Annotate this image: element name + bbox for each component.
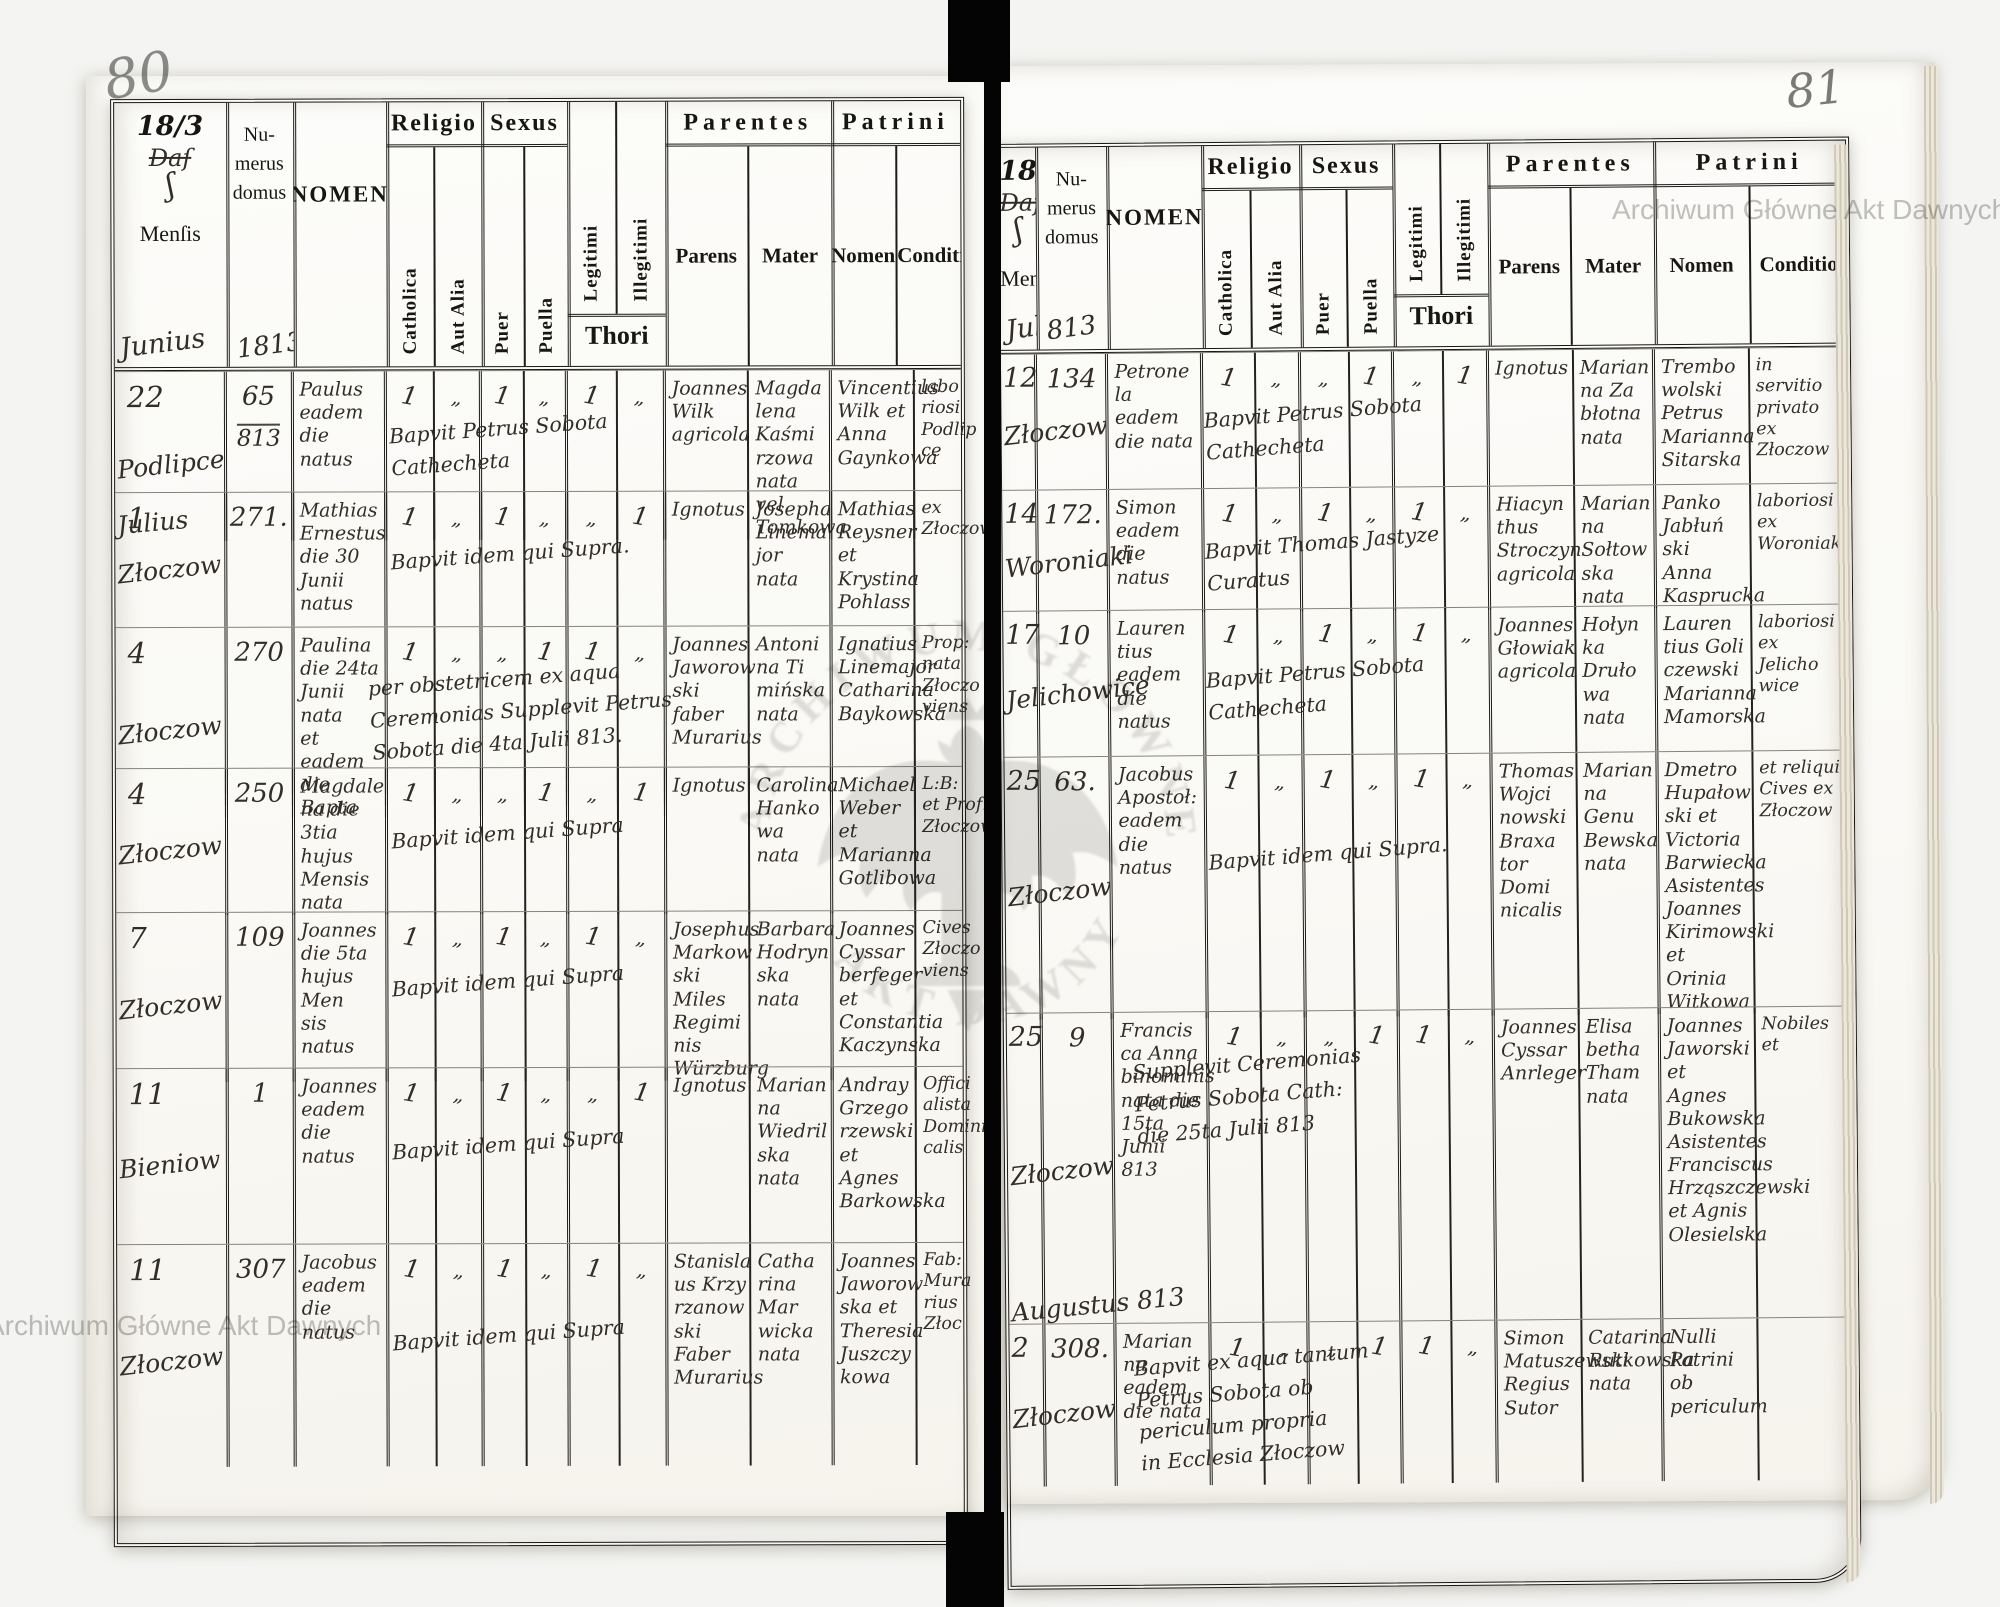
group-subcolumns: PuerPuella [1300,189,1394,347]
puer-mark: 1 [1302,615,1352,651]
header-group-sexus: SexusPuerPuella [1299,144,1397,347]
conditio-cell: in servitio privato ex Złoczow [1750,348,1849,484]
mater-cell: Marian na Genu Bewska nata [1577,752,1660,1015]
group-title: Patrini [1653,141,1845,188]
numerus-cell: 250 [228,769,295,915]
catholica-mark: 1 [385,499,435,535]
nomen-cell: Jacobus eadem die natus [296,1244,390,1466]
legitimi-mark: 1 [568,1250,620,1287]
puella-mark: „ [526,1255,570,1286]
place-name: Złoczow [117,711,224,751]
vertical-label: Aut Alia [448,278,470,354]
day-number: 4 [128,636,225,670]
group-subcolumns: LegitimiIllegitimi [1392,144,1488,295]
puer-mark: 1 [480,378,525,414]
child-name: Petrone la eadem die nata [1108,353,1201,453]
aut-alia-mark: „ [433,382,481,413]
table-header: 18/3DaſʃMenſisJuniusNu- merus domus1813N… [114,101,961,371]
patrini-nomen-cell: Trembo wolski Petrus Marianna Sitarska [1655,348,1751,484]
child-name: Magdale na die 3tia hujus Mensis nata [294,768,385,914]
year-label: 18/3 [114,111,226,142]
patrini-nomen-cell: Joannes Jaworski et Agnes Bukowska Asist… [1661,1007,1758,1318]
legitimi-mark-cell: 1 [571,1244,621,1466]
header-group-patrini: PatriniNomenConditio [1653,141,1847,345]
mater-cell: Marian na Za błotna nata [1574,349,1656,485]
date-cell: 7Złoczow [116,913,228,1082]
subcolumn: Puella [526,147,569,366]
illegitimi-mark-cell: „ [1448,754,1495,1016]
nomen-cell: Joannes die 5ta hujus Men sis natus [295,912,389,1081]
group-title: Parentes [1487,142,1653,188]
group-subcolumns: CatholicaAut Alia [387,147,482,366]
house-number: 270 [227,638,291,668]
month-handwritten: Julius [1004,306,1040,347]
father-name: Stanisla us Krzy rzanow ski Faber Murari… [668,1243,750,1389]
group-title: Religio [1201,145,1300,191]
puella-mark: „ [1351,765,1396,796]
numerus-cell: 271. [227,493,294,627]
group-title: Patrini [831,101,961,146]
illegitimi-mark-cell: „ [620,1244,668,1466]
nomen-cell: Petrone la eadem die nata [1108,353,1204,489]
house-number: 65 [227,382,291,412]
table-row: 2Złoczow308.Marian na eadem die nata1„„1… [1009,1316,1856,1486]
day-number: 7 [128,921,225,955]
thori-label: Thori [1394,294,1489,347]
puer-mark-cell: 1 [484,1244,528,1466]
conditio-cell [1758,1317,1857,1480]
place-name: Złoczow [117,985,224,1025]
mother-name: Catarina Rutkowska nata [1582,1319,1661,1396]
numerus-cell: 307 [229,1245,296,1467]
vertical-label: Aut Alia [1265,259,1288,335]
mater-cell: Hołyn ka Druło wa nata [1576,606,1658,752]
day-number: 4 [128,777,225,811]
illegitimi-mark: „ [618,922,666,953]
header-group-religio: ReligioCatholicaAut Alia [1201,145,1304,348]
group-subcolumns: CatholicaAut Alia [1202,190,1301,348]
puer-mark: 1 [482,1251,527,1287]
year-handwritten: 813 [1045,310,1098,346]
catholica-mark: 1 [387,1075,437,1111]
puella-mark: „ [525,923,569,954]
illegitimi-mark: „ [619,1254,667,1285]
aut-alia-mark: „ [435,1255,483,1286]
patrini-nomen-cell: Panko Jabłuń ski Anna Kasprucka [1656,484,1752,608]
header-nomen-column: NOMEN [293,102,391,366]
legitimi-mark-cell: 1 [570,912,620,1081]
vertical-label: Illegitimi [630,218,652,302]
parens-cell: Thomas Wojci nowski Braxa tor Domi nical… [1492,753,1579,1016]
patrini-nomen-cell: Nulli Patrini ob periculum [1663,1318,1759,1481]
header-group-patrini: PatriniNomenConditio [831,101,961,365]
godparents-names: Vincentius Wilk et Anna Gaynkowa [831,370,913,470]
godparents-condition: laboriosi ex Woroniaki [1751,483,1850,555]
puella-mark: „ [525,1079,569,1110]
aut-alia-mark: „ [1257,620,1302,651]
puer-mark: 1 [1303,761,1353,797]
catholica-mark: 1 [386,775,436,811]
catholica-mark: 1 [386,634,436,670]
group-title: Sexus [481,102,567,147]
house-number: 271. [227,503,291,533]
sublabel: Parens [665,146,749,365]
house-number: 1 [228,1079,292,1109]
puer-mark: 1 [482,1075,527,1111]
numerus-cell: 1 [228,1069,295,1244]
patrini-nomen-cell: Joannes Jaworow ska et Theresia Juszczy … [834,1243,918,1465]
aut-alia-mark: „ [433,503,481,534]
header-date-column: 18/3DaſʃMenſisJunius [114,103,229,367]
nomen-label: NOMEN [293,102,387,287]
mother-name: Catha rina Mar wicka nata [752,1243,831,1366]
day-number: 12 [1003,363,1035,394]
vertical-label: Legitimi [581,225,603,302]
numerus-cell: 109 [228,913,295,1082]
page-number-left: 80 [99,39,178,113]
puella-mark: „ [523,382,567,413]
catholica-mark: 1 [387,1251,437,1287]
mother-name: Marian na Za błotna nata [1574,349,1653,449]
godparents-condition: Nobiles et [1755,1006,1853,1057]
aut-alia-mark: „ [434,923,482,954]
mother-name: Marian na Sołtow ska nata [1575,485,1654,609]
date-cell: 11Złoczow [117,1245,229,1467]
mother-name: Elisa betha Tham nata [1579,1008,1658,1108]
child-name: Joannes eadem die natus [295,1068,386,1168]
subcolumn: Catholica [387,147,436,366]
vertical-label: Puella [536,297,558,354]
aut-alia-mark: „ [435,1079,483,1110]
subcolumn: Legitimi [1392,144,1442,294]
place-name: Złoczow [117,831,224,871]
group-subcolumns: PuerPuella [481,147,568,366]
puella-mark: 1 [524,775,569,810]
subcolumn: Aut Alia [435,147,482,366]
year-handwritten: 1813 [235,327,296,365]
godparents-names: Nulli Patrini ob periculum [1663,1318,1757,1418]
godparents-condition: Fab: Mura rius Złoc [917,1243,974,1336]
aut-alia-mark: „ [1256,499,1301,530]
puella-mark: „ [1350,619,1395,650]
table-row: 22PodlipceJulius65813Paulus eadem die na… [115,369,961,492]
godparents-condition [1758,1317,1855,1325]
place-name: Podlipce [116,444,226,484]
legitimi-mark: „ [567,502,618,534]
puella-mark: 1 [1348,358,1394,394]
house-number: 250 [228,779,292,809]
father-name: Joannes Głowiak agricola [1491,607,1574,684]
house-number: 307 [229,1255,293,1285]
catholica-mark: 1 [387,919,437,955]
group-title: Sexus [1299,144,1392,190]
vertical-label: Catholica [1215,249,1238,336]
puer-mark: 1 [480,499,525,535]
mensis-label: Menſis [114,221,226,247]
numerus-label: Nu- merus domus [1036,165,1108,253]
godparents-condition: et reliqui Cives ex Złoczow [1753,750,1851,822]
legitimi-mark-cell: 1 [1398,754,1450,1016]
parens-cell: Ignotus [1489,350,1575,486]
vertical-label: Catholica [399,267,421,354]
thori-label: Thori [568,314,665,366]
header-group-parentes: ParentesParensMater [1487,142,1658,345]
header-date-column: 18/3DaſʃMenſisJulius [999,148,1040,350]
legitimi-mark: „ [568,1078,619,1110]
aut-alia-mark: „ [434,779,482,810]
catholica-mark: 1 [1201,359,1256,396]
subcolumn: Puella [1347,189,1394,346]
godparents-names: Dmetro Hupałow ski et Victoria Barwiecka… [1658,751,1753,1014]
godparents-names: Lauren tius Goli czewski Marianna Mamors… [1657,605,1751,729]
illegitimi-mark: „ [1446,765,1491,796]
illegitimi-mark: 1 [617,774,666,810]
vertical-label: Puer [1312,292,1334,335]
subcolumn: Aut Alia [1252,190,1301,347]
group-subcolumns: ParensMater [665,146,831,365]
vertical-label: Puer [492,311,514,354]
day-number: 2 [1011,1333,1043,1364]
house-number: 134 [1037,364,1105,395]
mensis-label: Menſis [1000,266,1037,292]
puella-mark-cell: „ [527,1244,571,1466]
subcolumn: Catholica [1202,191,1253,348]
godparents-names: Panko Jabłuń ski Anna Kasprucka [1656,484,1750,608]
header-group-religio: ReligioCatholicaAut Alia [387,102,485,366]
day-number: 11 [129,1253,226,1287]
mother-name: Hołyn ka Druło wa nata [1576,606,1655,730]
aut-alia-mark: „ [434,638,482,669]
group-subcolumns: NomenConditio [831,146,961,365]
place-name: Złoczow [116,549,223,589]
legitimi-mark: „ [568,778,619,810]
table-row: 12Złoczow134Petrone la eadem die nata1„„… [1001,347,1848,490]
sublabel: Nomen [831,146,898,365]
day-number: 11 [129,1077,226,1111]
header-numerus-column: Nu- merus domus813 [1035,147,1111,350]
legitimi-mark: 1 [1396,760,1448,797]
year-label: 18/3 [999,156,1036,187]
patrini-nomen-cell: Lauren tius Goli czewski Marianna Mamors… [1657,605,1753,751]
mater-cell: Elisa betha Tham nata [1579,1008,1663,1319]
illegitimi-mark: 1 [618,1074,667,1110]
conditio-cell: laboriosi ex Woroniaki [1751,483,1851,607]
header-group-parentes: ParentesParensMater [665,101,835,365]
header-numerus-column: Nu- merus domus1813 [226,103,297,367]
page-number-right: 81 [1783,59,1847,119]
father-name: Joannes Wilk agricola [666,370,748,447]
godparents-names: Trembo wolski Petrus Marianna Sitarska [1655,348,1749,472]
archive-eagle-watermark-icon: ARCHIWUM GŁÓWNE AKT DAWNYCH [695,520,1240,1120]
subcolumn: Legitimi [568,102,618,314]
godparents-names: Joannes Jaworski et Agnes Bukowska Asist… [1661,1007,1756,1247]
puer-mark: „ [481,779,526,810]
legitimi-mark: 1 [568,918,620,955]
archive-watermark-text: Archiwum Główne Akt Dawnych [1612,194,2000,226]
legitimi-mark: 1 [1395,614,1447,651]
father-name: Thomas Wojci nowski Braxa tor Domi nical… [1492,753,1576,923]
house-number-year: 813 [237,424,280,452]
child-name: Joannes die 5ta hujus Men sis natus [295,912,386,1058]
sublabel: Parens [1488,188,1573,346]
sublabel: Conditio [897,146,961,365]
godparents-names: Joannes Jaworow ska et Theresia Juszczy … [834,1243,916,1389]
puer-mark: 1 [481,919,526,955]
date-cell: 12Złoczow [1001,355,1039,490]
puer-mark: „ [1300,362,1350,393]
catholica-mark: 1 [385,378,435,414]
illegitimi-mark-cell: „ [620,912,668,1081]
day-number: 22 [127,380,224,414]
conditio-cell: Nobiles et [1755,1006,1855,1317]
archive-watermark-text: Archiwum Główne Akt Dawnych [0,1310,381,1342]
conditio-cell: laboriosi ex Jelicho wice [1752,605,1851,751]
group-title: Religio [387,102,482,147]
vertical-label: Illegitimi [1453,198,1476,282]
mater-cell: Catarina Rutkowska nata [1582,1319,1665,1482]
place-name: Złoczow [118,1342,225,1382]
place-name: Bieniow [118,1144,222,1184]
nomen-cell: Magdale na die 3tia hujus Mensis nata [294,768,388,914]
subcolumn: Illegitimi [1441,144,1489,294]
header-group-sexus: SexusPuerPuella [481,102,571,366]
date-cell: 4Złoczow [116,769,228,915]
child-name: Mathias Ernestus die 30 Junii natus [294,492,385,615]
header-nomen-column: NOMEN [1107,146,1207,349]
godparents-condition: laboriosi ex Jelicho wice [1752,605,1850,698]
table-header: 18/3DaſʃMenſisJuliusNu- merus domus813NO… [999,141,1847,354]
parens-cell: Hiacyn thus Stroczyn agricola [1490,486,1576,610]
parens-cell: Stanisla us Krzy rzanow ski Faber Murari… [668,1243,752,1465]
godparents-condition: in servitio privato ex Złoczow [1750,348,1848,463]
father-name: Ignotus [666,491,748,521]
subcolumn: Illegitimi [617,102,665,314]
header-group-thori: LegitimiIllegitimiThori [568,102,669,366]
subcolumn: Puer [481,147,526,366]
vertical-label: Legitimi [1405,206,1428,283]
mater-cell: Catha rina Mar wicka nata [752,1243,835,1465]
aut-alia-mark-cell: „ [1260,755,1307,1017]
mater-cell: Marian na Sołtow ska nata [1575,485,1657,609]
conditio-cell: et reliqui Cives ex Złoczow [1753,750,1853,1013]
nomen-cell: Joannes eadem die natus [295,1068,389,1243]
parens-cell: Joannes Głowiak agricola [1491,607,1577,753]
conditio-cell: Fab: Mura rius Złoc [917,1243,975,1465]
vertical-label: Puella [1360,278,1382,335]
date-cell: 11Bieniow [117,1069,229,1244]
father-name: Ignotus [1489,350,1572,381]
nomen-cell: Mathias Ernestus die 30 Junii natus [294,492,388,626]
sublabel: Mater [749,146,831,365]
puer-mark-cell: 1 [1305,755,1356,1017]
register-scan: 18/3DaſʃMenſisJuniusNu- merus domus1813N… [0,0,2000,1607]
numerus-label: Nu- merus domus [226,121,293,208]
nomen-label: NOMEN [1107,146,1203,288]
month-handwritten: Junius [118,323,207,364]
aut-alia-mark: „ [1258,766,1303,797]
godparents-condition: labo riosi Podlip ce [915,370,979,463]
puella-mark-cell: „ [527,912,571,1081]
father-name: Hiacyn thus Stroczyn agricola [1490,486,1573,586]
illegitimi-mark-cell: 1 [620,1068,668,1243]
header-group-thori: LegitimiIllegitimiThori [1392,144,1492,347]
patrini-nomen-cell: Dmetro Hupałow ski et Victoria Barwiecka… [1658,751,1755,1014]
puella-mark-cell: „ [1353,754,1400,1016]
puella-mark: „ [524,503,568,534]
table-row: 11Złoczow307Jacobus eadem die natus1„1„1… [117,1242,964,1467]
mother-name: Marian na Genu Bewska nata [1577,752,1656,876]
binding-strip-bottom [946,1512,1004,1607]
date-cell: 2Złoczow [1009,1325,1047,1487]
child-name: Paulus eadem die natus [293,371,384,471]
house-number: 308. [1046,1334,1114,1365]
group-title: Parentes [665,101,831,146]
house-number: 109 [228,923,292,953]
group-subcolumns: LegitimiIllegitimi [568,102,666,314]
subcolumn: Puer [1300,190,1349,347]
aut-alia-mark: „ [1255,363,1300,394]
